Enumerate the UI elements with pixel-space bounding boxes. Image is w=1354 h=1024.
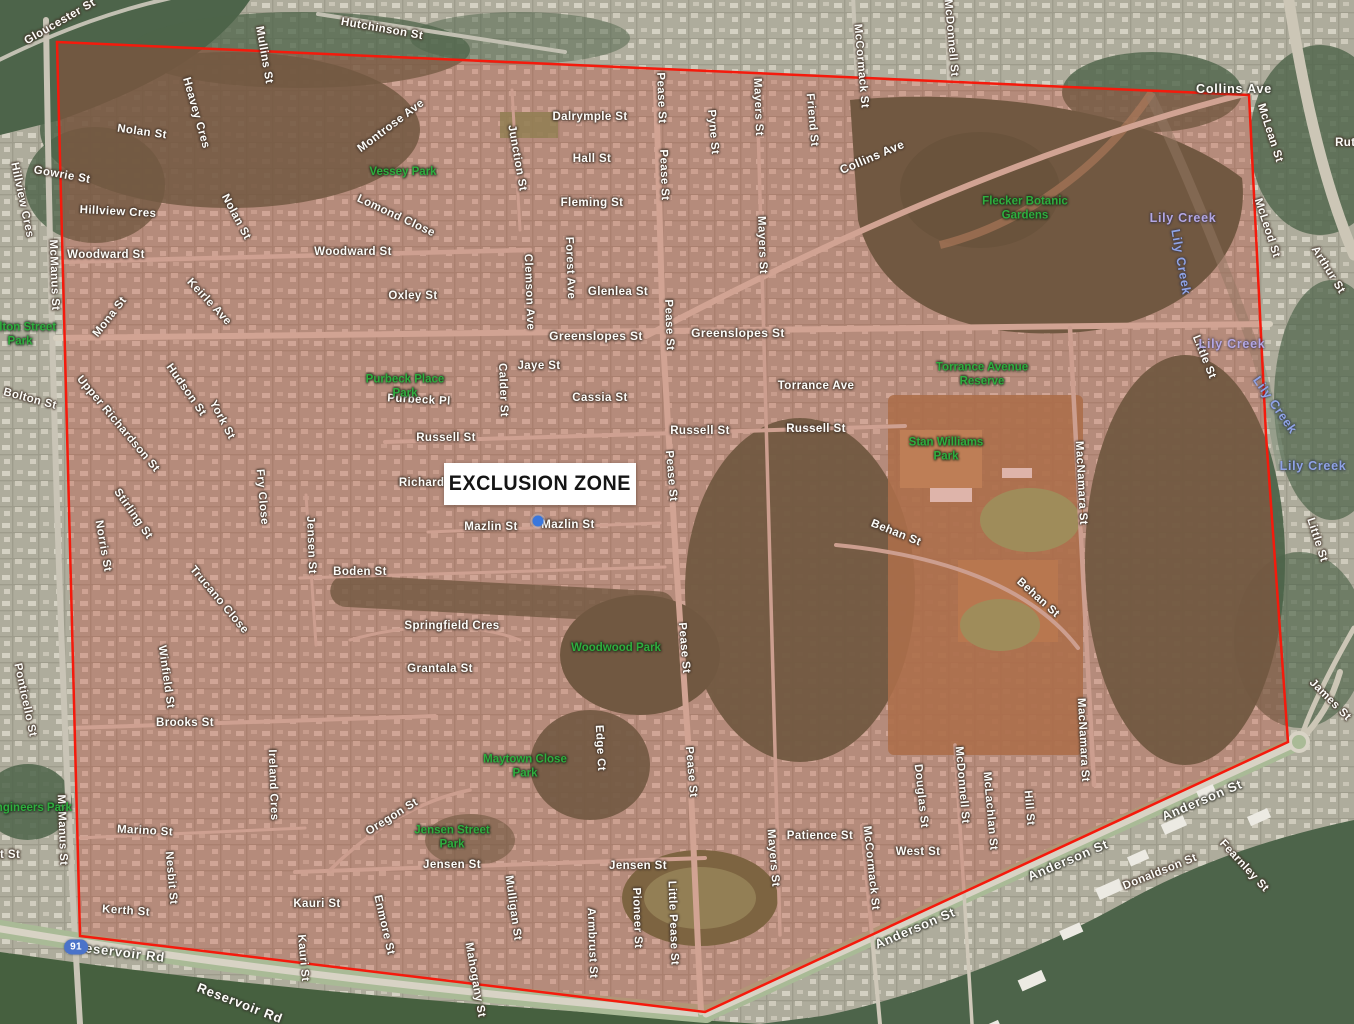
street-label: Pease St bbox=[654, 72, 668, 124]
street-label: Mullins St bbox=[253, 25, 275, 85]
street-label: Glenlea St bbox=[588, 286, 648, 298]
street-label: Douglas St bbox=[912, 764, 931, 829]
park-label: Woodwood Park bbox=[571, 641, 661, 655]
street-label: Little St bbox=[1190, 334, 1218, 381]
street-label: McManus St bbox=[47, 239, 61, 310]
street-label: Anderson St bbox=[872, 904, 957, 951]
street-label: West St bbox=[896, 846, 941, 858]
street-label: Enmore St bbox=[371, 894, 396, 956]
street-label: Jensen St bbox=[304, 516, 318, 574]
street-label: McCormack St bbox=[861, 825, 882, 910]
street-label: Mazlin St bbox=[541, 519, 594, 531]
street-label: Mulligan St bbox=[502, 875, 523, 942]
water-label: Lily Creek bbox=[1280, 459, 1347, 473]
street-label: Pioneer St bbox=[630, 887, 644, 948]
exclusion-zone-label: EXCLUSION ZONE bbox=[444, 463, 636, 505]
street-label: McLeod St bbox=[1252, 197, 1282, 259]
street-label: Mayers St bbox=[755, 216, 769, 274]
street-label: Kauri St bbox=[293, 898, 340, 910]
street-label: Greenslopes St bbox=[549, 329, 643, 343]
street-label: Heavey Cres bbox=[180, 76, 212, 150]
street-label: Bolton St bbox=[2, 386, 58, 412]
street-label: MacNamara St bbox=[1075, 698, 1091, 783]
street-label: Gloucester St bbox=[22, 0, 97, 47]
street-label: Anderson St bbox=[1159, 776, 1244, 823]
street-label: Fleming St bbox=[561, 197, 624, 209]
street-label: Little Pease St bbox=[666, 881, 681, 966]
street-label: Anderson St bbox=[1025, 836, 1110, 883]
street-label: Armbrust St bbox=[585, 907, 599, 978]
street-label: Montrose Ave bbox=[355, 97, 426, 155]
street-label: Marino St bbox=[117, 824, 174, 839]
location-marker[interactable] bbox=[533, 516, 544, 527]
map-canvas[interactable]: Gloucester StHutchinson StMullins StMcCo… bbox=[0, 0, 1354, 1024]
park-label: Torrance Avenue Reserve bbox=[936, 361, 1028, 390]
street-label: Upper Richardson St bbox=[74, 373, 162, 474]
street-label: Ponticello St bbox=[11, 662, 38, 738]
street-label: Greenslopes St bbox=[691, 326, 785, 340]
street-label: Stirling St bbox=[111, 487, 155, 542]
exclusion-zone-label-text: EXCLUSION ZONE bbox=[449, 472, 631, 496]
street-label: Fry Close bbox=[254, 469, 271, 526]
street-label: Hill St bbox=[1021, 790, 1036, 826]
street-label: Hillview Cres bbox=[8, 161, 36, 239]
water-label: Lily Creek bbox=[1168, 228, 1193, 296]
street-label: Nesbit St bbox=[163, 851, 180, 905]
street-label: Hutchinson St bbox=[340, 16, 424, 42]
street-label: Woodward St bbox=[314, 246, 392, 258]
street-label: McDonnell St bbox=[953, 746, 972, 824]
street-label: Gowrie St bbox=[33, 164, 91, 186]
street-label: Reservoir Rd bbox=[195, 980, 285, 1024]
street-label: Dalrymple St bbox=[552, 111, 627, 123]
street-label: Clemson Ave bbox=[522, 254, 537, 331]
street-label: Brooks St bbox=[156, 717, 214, 729]
street-label: Kauri St bbox=[295, 934, 311, 982]
street-label: Pyne St bbox=[705, 109, 721, 155]
street-label: Woodward St bbox=[67, 249, 145, 261]
street-label: Nolan St bbox=[116, 123, 167, 142]
street-label: Grantala St bbox=[407, 663, 473, 675]
water-label: Lily Creek bbox=[1150, 211, 1217, 225]
route-shield-91: 91 bbox=[64, 940, 88, 955]
park-label: Vessey Park bbox=[369, 165, 436, 179]
street-label: Collins Ave bbox=[1196, 82, 1272, 96]
park-label: Jensen Street Park bbox=[414, 824, 489, 853]
street-label: Boden St bbox=[333, 566, 387, 578]
street-label: Patience St bbox=[787, 830, 853, 842]
street-label: Norris St bbox=[93, 519, 114, 572]
street-label: Mazlin St bbox=[464, 521, 517, 533]
street-label: McDonnell St bbox=[942, 0, 961, 77]
street-label: Junction St bbox=[505, 124, 528, 192]
street-label: Forest Ave bbox=[563, 237, 577, 300]
street-label: Behan St bbox=[1014, 576, 1061, 620]
street-label: Fearnley St bbox=[1217, 838, 1271, 895]
street-label: Pease St bbox=[683, 746, 699, 798]
park-label: Engineers Park bbox=[0, 801, 72, 815]
street-label: James St bbox=[1307, 677, 1353, 723]
street-label: MacNamara St bbox=[1073, 441, 1089, 526]
street-label: Arthur St bbox=[1309, 244, 1347, 296]
park-label: Flecker Botanic Gardens bbox=[982, 195, 1068, 224]
street-label: Friend St bbox=[804, 93, 821, 147]
street-label: Pease St bbox=[657, 149, 671, 201]
park-label: Stan Williams Park bbox=[909, 436, 984, 465]
street-label: York St bbox=[207, 399, 237, 442]
street-label: Mahogany St bbox=[462, 942, 487, 1019]
street-label: Hudson St bbox=[164, 362, 209, 419]
street-label: Jensen St bbox=[609, 860, 667, 872]
street-label: Oxley St bbox=[388, 290, 437, 302]
street-label: Mayers St bbox=[764, 829, 781, 888]
street-label: McCormack St bbox=[851, 23, 870, 108]
street-label: Keirle Ave bbox=[184, 276, 233, 328]
street-label: Jaye St bbox=[517, 360, 560, 372]
street-label: Springfield Cres bbox=[404, 620, 499, 632]
street-label: McLachlan St bbox=[981, 771, 1000, 851]
street-label: Mayers St bbox=[751, 78, 765, 136]
park-label: Purbeck Place Park bbox=[366, 373, 445, 402]
street-label: Kerth St bbox=[102, 903, 151, 918]
street-label: Mona St bbox=[91, 295, 130, 340]
street-label: Pease St bbox=[663, 450, 679, 502]
street-label: McLean St bbox=[1255, 102, 1285, 164]
street-label: Russell St bbox=[416, 432, 476, 444]
street-label: Ireland Cres bbox=[266, 749, 280, 821]
street-label: Purbeck Pl bbox=[387, 392, 451, 407]
street-label: Pease St bbox=[676, 622, 692, 674]
street-label: tt St bbox=[0, 849, 20, 861]
street-label: Donaldson St bbox=[1121, 852, 1199, 893]
street-label: Little St bbox=[1304, 516, 1330, 563]
street-label: McManus St bbox=[55, 794, 69, 865]
street-label: Cassia St bbox=[572, 392, 627, 404]
street-label: Torrance Ave bbox=[778, 380, 855, 392]
street-label: Hall St bbox=[573, 153, 612, 165]
street-label: Oregon St bbox=[364, 796, 421, 838]
water-label: Lily Creek bbox=[1199, 337, 1266, 351]
label-layer: Gloucester StHutchinson StMullins StMcCo… bbox=[0, 0, 1354, 1024]
street-label: Hillview Cres bbox=[79, 204, 156, 220]
street-label: Pease St bbox=[662, 299, 676, 351]
street-label: Russell St bbox=[786, 423, 846, 435]
street-label: Lomond Close bbox=[355, 193, 437, 240]
street-label: Behan St bbox=[869, 518, 923, 549]
street-label: Ruth bbox=[1335, 137, 1354, 149]
water-label: Lily Creek bbox=[1250, 374, 1300, 437]
street-label: Collins Ave bbox=[838, 137, 907, 177]
street-label: Russell St bbox=[670, 425, 730, 437]
street-label: Reservoir Rd bbox=[74, 939, 166, 965]
park-label: Maytown Close Park bbox=[483, 753, 567, 782]
park-label: Bolton Street Park bbox=[0, 321, 56, 350]
street-label: Nolan St bbox=[219, 192, 253, 242]
street-label: Winfield St bbox=[156, 645, 177, 710]
street-label: Edge Ct bbox=[593, 725, 607, 772]
street-label: Trucano Close bbox=[187, 564, 250, 636]
street-label: Jensen St bbox=[423, 859, 481, 871]
street-label: Calder St bbox=[496, 363, 510, 417]
